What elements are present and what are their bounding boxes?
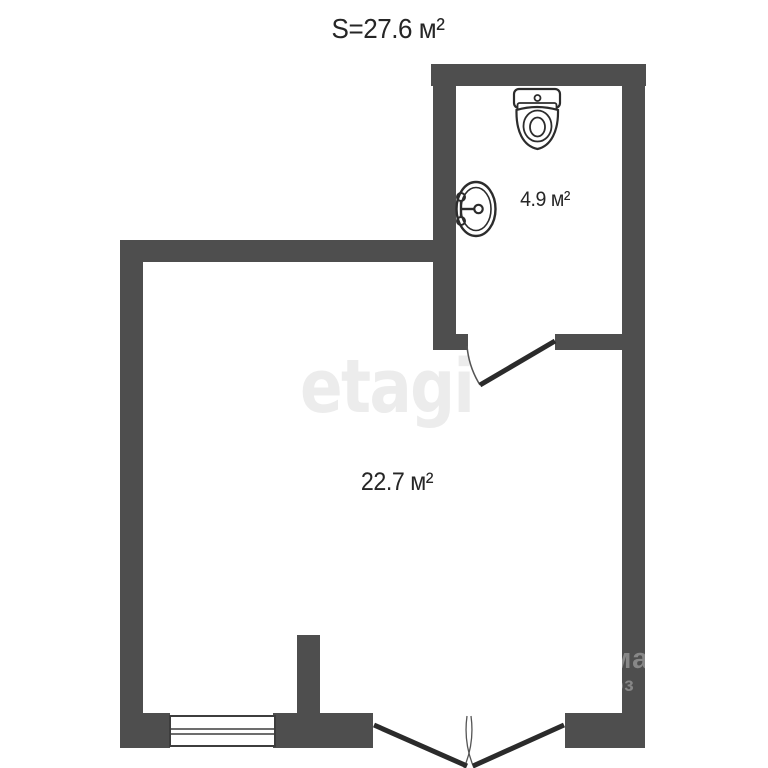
door-swing-arc (467, 346, 480, 385)
floor-plan-drawing (0, 0, 768, 768)
wall-segment (565, 713, 645, 748)
wall-watermark-fragment: эз (613, 676, 635, 695)
wall-segment (431, 64, 646, 86)
window-icon (170, 716, 275, 746)
walls-group (120, 64, 646, 748)
sink-spout-tip (474, 205, 482, 213)
window-frame (170, 716, 275, 746)
wall-segment (120, 713, 170, 748)
bathroom-door-icon (467, 341, 555, 385)
wall-segment (297, 635, 320, 713)
door-leaf (374, 725, 467, 766)
door-leaf (473, 725, 564, 766)
wall-watermark-fragment: ма (610, 645, 649, 674)
wall-segment (433, 64, 456, 350)
toilet-flush-button (535, 95, 541, 101)
wall-segment (120, 240, 143, 748)
toilet-icon (514, 89, 560, 149)
wall-segment (555, 334, 645, 350)
entrance-door-icon (374, 716, 564, 768)
living-room-area-label: 22.7 м² (332, 468, 462, 497)
wall-segment (120, 240, 456, 262)
bathroom-area-label: 4.9 м² (489, 188, 601, 212)
wall-segment (273, 713, 373, 748)
wall-segment (433, 334, 468, 350)
door-leaf (480, 341, 555, 385)
floor-plan-page: S=27.6 м² etagi (0, 0, 768, 768)
